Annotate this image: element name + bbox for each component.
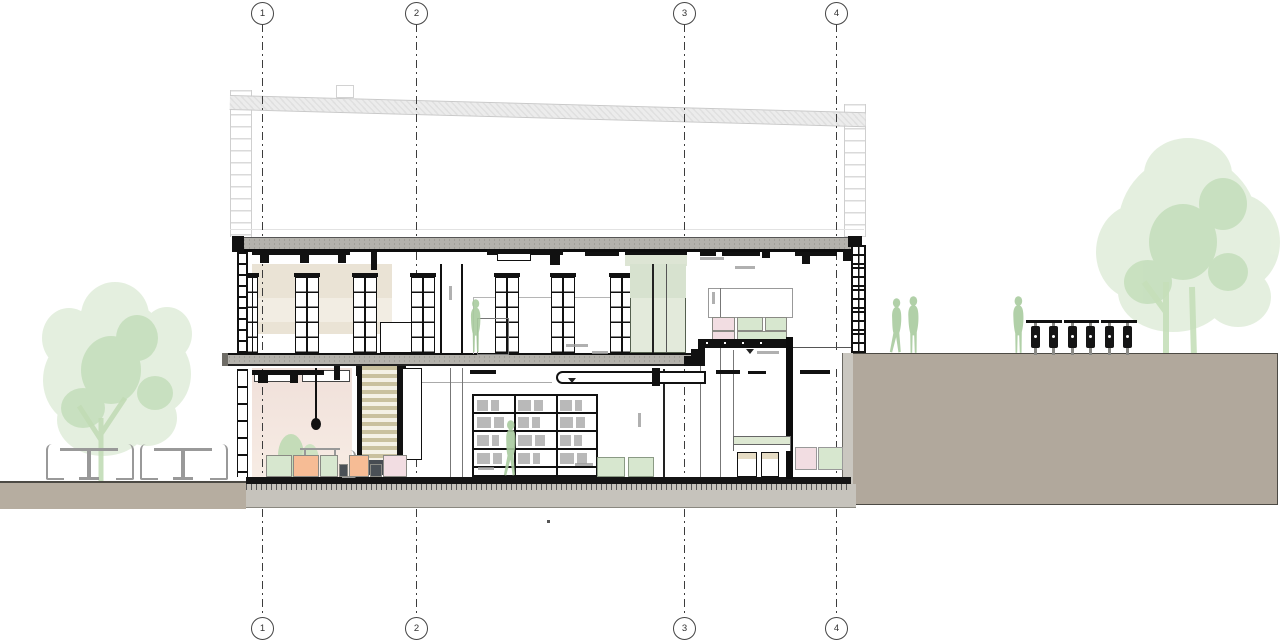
- books: [534, 400, 543, 411]
- person-silhouette: [903, 296, 925, 354]
- grid-bubble-1: 1: [251, 2, 274, 25]
- ceiling-fixture: [260, 255, 269, 263]
- seat-cushion: [765, 317, 787, 331]
- books: [533, 453, 540, 464]
- seat-block: [266, 455, 292, 477]
- cut-wall: [786, 337, 793, 479]
- shelf-tower: [247, 277, 258, 353]
- grid-line-1: [262, 252, 263, 353]
- upper-cabinet: [380, 322, 412, 353]
- chair-right: [210, 444, 228, 480]
- glass-partition-header: [630, 264, 686, 298]
- partition-mullion: [666, 264, 667, 353]
- table-base: [79, 477, 99, 480]
- level-marker: [568, 378, 576, 383]
- shelf-cap: [410, 273, 436, 277]
- bike-pedal: [1052, 335, 1055, 338]
- table-stem: [181, 451, 185, 478]
- partition-hairline: [450, 368, 451, 477]
- books: [535, 435, 545, 446]
- seat-block: [320, 455, 338, 477]
- grid-line-1: [262, 24, 263, 236]
- shelf-divider: [556, 394, 558, 477]
- ceiling-fixture: [802, 256, 810, 264]
- chair-right: [116, 444, 134, 480]
- upper-floor-edge-line: [793, 347, 851, 348]
- elevation-microtext: [592, 351, 608, 354]
- table-base: [173, 477, 193, 480]
- stool-cap: [738, 453, 756, 459]
- duct-bracket: [652, 368, 660, 386]
- ceiling-panel: [497, 253, 531, 261]
- bike-pedal: [1126, 335, 1129, 338]
- grid-line-3: [684, 369, 685, 477]
- books: [518, 400, 531, 411]
- shelf-tower: [353, 277, 377, 353]
- books: [575, 400, 582, 411]
- shelf-cap: [494, 273, 520, 277]
- partition-mullion: [652, 264, 654, 353]
- books: [491, 400, 499, 411]
- bike-pedal: [1071, 335, 1074, 338]
- books: [574, 435, 582, 446]
- shelf-cap: [550, 273, 576, 277]
- grid-line-4: [836, 24, 837, 236]
- platform-step: [684, 356, 691, 366]
- ceiling-fixture: [550, 255, 560, 265]
- bench-cushion: [795, 447, 817, 470]
- shelf-line: [472, 448, 598, 450]
- ceiling-drop: [371, 252, 377, 270]
- ghost-lower-chord: [230, 229, 864, 230]
- shelf-grid: [296, 278, 318, 352]
- ceiling-track: [722, 252, 760, 256]
- shelf-grid: [248, 278, 257, 352]
- shelf-line: [472, 430, 598, 432]
- ground-floor-hatch: [246, 484, 851, 490]
- shelf-line: [472, 412, 598, 414]
- seat-cushion: [712, 317, 735, 331]
- person-silhouette: [1008, 296, 1030, 354]
- platform-fixings: [706, 342, 778, 344]
- left-glazing-lower: [237, 369, 248, 477]
- dimension-microtext: [712, 292, 715, 304]
- ceiling-fixture: [843, 249, 851, 261]
- partition-hairline: [462, 368, 463, 477]
- ghost-left-mullion: [230, 90, 252, 237]
- dimension-microtext: [638, 413, 641, 427]
- dimension-microtext: [449, 286, 452, 300]
- elevation-microtext: [735, 266, 755, 269]
- grid-bubble-4: 4: [825, 2, 848, 25]
- shelf-tower: [295, 277, 319, 353]
- pendant-lamp: [311, 418, 321, 430]
- stray-mark: [547, 520, 550, 523]
- ceiling-track: [800, 370, 830, 374]
- platform-step: [691, 349, 698, 366]
- bike-pedal: [1034, 335, 1037, 338]
- books: [560, 453, 574, 464]
- ceiling-fixture: [258, 375, 268, 383]
- books: [477, 453, 490, 464]
- bench-cushion: [818, 447, 843, 470]
- partition-hairline: [700, 350, 701, 477]
- bench-base: [733, 445, 791, 451]
- books: [560, 417, 573, 428]
- pendant-cord: [315, 368, 317, 420]
- shelf-cap: [352, 273, 378, 277]
- staircase: [357, 366, 402, 460]
- seat-cushion: [737, 317, 763, 331]
- section-drawing-sheet: 11223344: [0, 0, 1280, 641]
- right-glazing-upper: [851, 245, 866, 353]
- ceiling-track: [716, 370, 740, 374]
- stool-cap: [762, 453, 778, 459]
- ceiling-track: [748, 371, 766, 374]
- terrain-right: [842, 353, 1278, 505]
- partition-hairline: [733, 350, 734, 436]
- grid-bubble-1: 1: [251, 617, 274, 640]
- grid-line-3: [684, 509, 685, 617]
- bike-rack-bar: [1026, 320, 1062, 323]
- seat-block: [339, 464, 348, 477]
- grid-line-2: [416, 24, 417, 236]
- books: [477, 435, 489, 446]
- books: [560, 400, 572, 411]
- grid-bubble-3: 3: [673, 617, 696, 640]
- ceiling-fixture: [290, 375, 298, 383]
- grid-line-1: [262, 509, 263, 617]
- bike-rack-bar: [1101, 320, 1137, 323]
- elevation-microtext: [700, 257, 724, 260]
- grid-bubble-2: 2: [405, 2, 428, 25]
- shelf-cap: [294, 273, 320, 277]
- ventilation-duct: [556, 371, 706, 384]
- elevation-microtext: [757, 351, 779, 354]
- books: [560, 435, 571, 446]
- shelf-tower: [411, 277, 435, 353]
- upper-column: [440, 264, 463, 353]
- seat-block: [293, 455, 319, 477]
- shelf-tower: [551, 277, 575, 353]
- seat-block: [383, 455, 407, 477]
- grid-bubble-4: 4: [825, 617, 848, 640]
- column-lower: [663, 369, 665, 477]
- table-stem: [87, 451, 91, 478]
- ceiling-fixture: [300, 255, 309, 263]
- books: [492, 435, 499, 446]
- grid-line-4: [836, 252, 837, 353]
- ghost-roof-band: [230, 95, 866, 127]
- books: [477, 417, 491, 428]
- person-silhouette: [466, 299, 486, 353]
- door-panel: [402, 368, 422, 460]
- seat-block: [370, 464, 382, 477]
- books: [477, 400, 488, 411]
- shelf-cap: [246, 273, 259, 277]
- ceiling-drop: [334, 366, 340, 380]
- level-marker: [746, 349, 754, 354]
- grid-bubble-3: 3: [673, 2, 696, 25]
- terrain-left: [0, 481, 246, 509]
- low-bench: [597, 457, 625, 477]
- grid-line-2: [416, 509, 417, 617]
- ceiling-track: [470, 370, 496, 374]
- ceiling-fixture: [762, 250, 770, 258]
- grid-line-4: [836, 509, 837, 617]
- grid-line-3: [684, 24, 685, 236]
- roof-cap-left: [232, 236, 244, 252]
- grid-bubble-2: 2: [405, 617, 428, 640]
- shelf-grid: [354, 278, 376, 352]
- chair-left: [46, 444, 64, 480]
- shelf-grid: [552, 278, 574, 352]
- elevation-microtext: [566, 344, 588, 347]
- ceiling-fixture: [338, 255, 346, 263]
- bike-rack-bar: [1064, 320, 1099, 323]
- ground-floor-band: [246, 477, 851, 484]
- label-microtext: [575, 463, 593, 466]
- ceiling-hairline: [404, 382, 552, 383]
- ceiling-track: [585, 252, 619, 256]
- ghost-roof-box: [336, 85, 354, 98]
- seat-block: [349, 455, 369, 477]
- bench-top: [733, 436, 791, 445]
- books: [532, 417, 540, 428]
- label-microtext: [478, 467, 494, 470]
- shelf-grid: [412, 278, 434, 352]
- low-bench: [628, 457, 654, 477]
- chair-left: [140, 444, 158, 480]
- books: [576, 417, 585, 428]
- grid-line-1: [262, 369, 263, 477]
- platform-step: [698, 342, 705, 366]
- ceiling-fixture: [700, 250, 716, 256]
- bike-pedal: [1108, 335, 1111, 338]
- mid-slab-cap-left: [222, 353, 228, 366]
- bike-pedal: [1089, 335, 1092, 338]
- mid-slab: [222, 353, 700, 366]
- person-silhouette: [500, 420, 522, 477]
